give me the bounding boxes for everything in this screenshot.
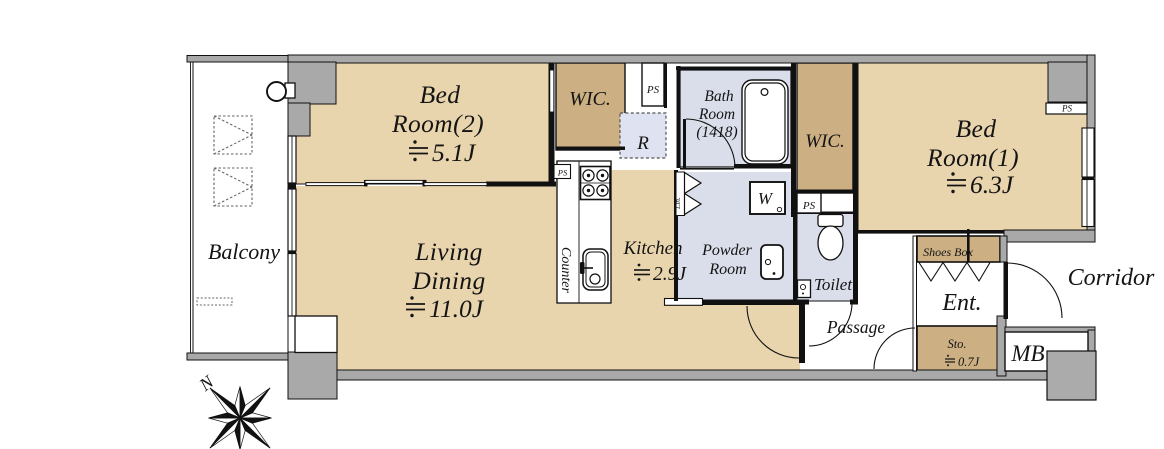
svg-text:Shoes Box: Shoes Box xyxy=(923,245,973,259)
svg-text:6.3J: 6.3J xyxy=(970,170,1015,199)
svg-text:PS: PS xyxy=(557,168,568,178)
svg-text:Kitchen: Kitchen xyxy=(622,238,682,259)
svg-text:WIC.: WIC. xyxy=(569,88,611,110)
svg-text:Bed: Bed xyxy=(956,114,997,143)
svg-text:Bath: Bath xyxy=(704,88,734,105)
svg-text:Room(2): Room(2) xyxy=(391,109,484,138)
svg-text:Counter: Counter xyxy=(558,247,573,293)
svg-text:W: W xyxy=(758,189,774,208)
svg-text:Dining: Dining xyxy=(411,266,485,295)
svg-text:PS: PS xyxy=(646,84,660,96)
svg-text:MB: MB xyxy=(1010,341,1044,366)
svg-text:Room: Room xyxy=(708,261,746,278)
svg-text:Living: Living xyxy=(414,237,483,266)
svg-text:2.9J: 2.9J xyxy=(653,264,687,285)
svg-text:Bed: Bed xyxy=(420,80,461,109)
svg-text:Sto.: Sto. xyxy=(947,337,966,351)
svg-text:Toilet: Toilet xyxy=(814,275,853,294)
svg-text:R: R xyxy=(636,133,649,154)
svg-text:Corridor: Corridor xyxy=(1068,265,1155,291)
svg-text:5.1J: 5.1J xyxy=(432,138,477,167)
svg-text:Room: Room xyxy=(698,106,735,123)
svg-text:Room(1): Room(1) xyxy=(926,143,1019,172)
svg-text:Ent.: Ent. xyxy=(941,290,981,316)
svg-text:Lin.: Lin. xyxy=(673,197,682,210)
svg-text:(1418): (1418) xyxy=(696,124,737,141)
svg-text:PS: PS xyxy=(802,200,816,212)
svg-text:11.0J: 11.0J xyxy=(429,294,485,323)
svg-text:Passage: Passage xyxy=(826,317,886,337)
svg-text:PS: PS xyxy=(1061,104,1072,114)
svg-text:WIC.: WIC. xyxy=(805,131,845,152)
svg-text:Balcony: Balcony xyxy=(208,239,280,264)
svg-text:0.7J: 0.7J xyxy=(958,355,981,369)
svg-text:Powder: Powder xyxy=(701,242,753,259)
